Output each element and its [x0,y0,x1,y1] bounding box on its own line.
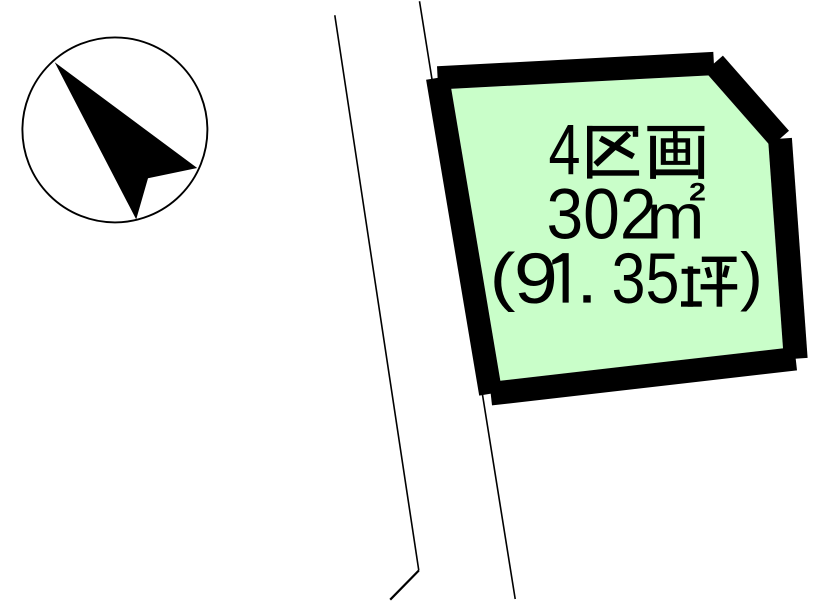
svg-text:2: 2 [689,179,706,207]
svg-text:(: ( [490,241,517,313]
svg-text:9: 9 [514,240,558,319]
svg-text:35: 35 [612,240,680,319]
svg-text:): ) [740,240,763,312]
